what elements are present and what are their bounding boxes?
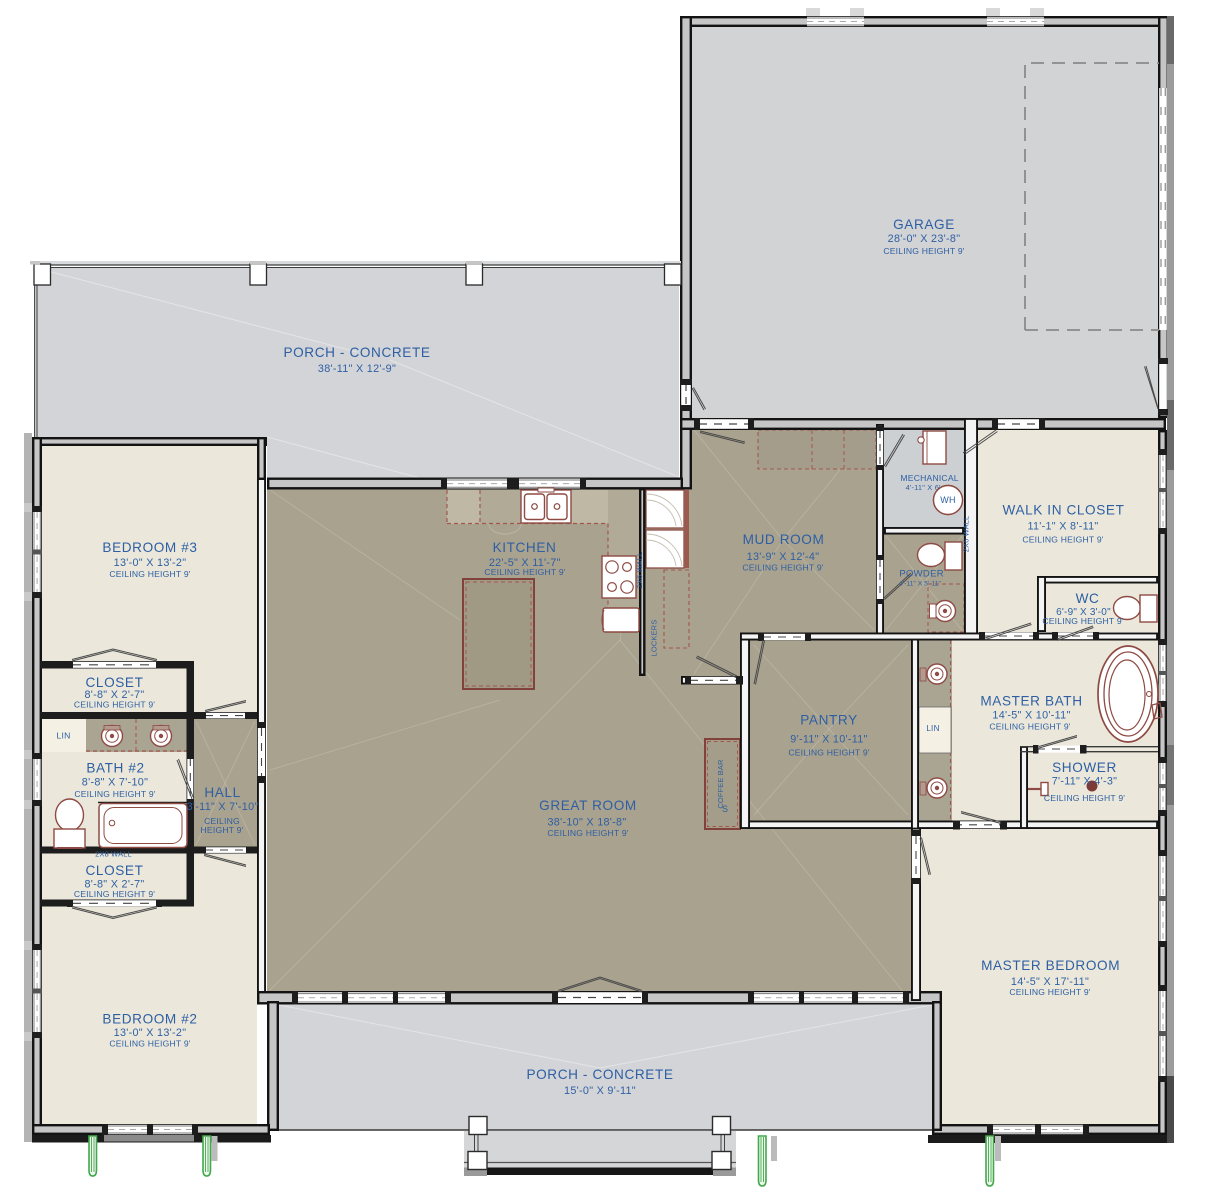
svg-text:S: S — [722, 804, 728, 814]
svg-text:CEILING HEIGHT 9': CEILING HEIGHT 9' — [484, 567, 565, 577]
svg-text:3'-11" X 7'-10": 3'-11" X 7'-10" — [187, 801, 259, 813]
svg-text:SHOWER: SHOWER — [1052, 760, 1117, 775]
svg-text:CEILING HEIGHT 9': CEILING HEIGHT 9' — [1042, 616, 1123, 626]
svg-text:2X6 WALL: 2X6 WALL — [962, 516, 971, 553]
svg-text:13'-9" X 12'-4": 13'-9" X 12'-4" — [747, 551, 820, 563]
svg-text:CEILING HEIGHT 9': CEILING HEIGHT 9' — [109, 1039, 190, 1049]
svg-text:9'-11" X 10'-11": 9'-11" X 10'-11" — [790, 734, 867, 746]
svg-text:HALL: HALL — [204, 785, 240, 800]
svg-text:PORCH - CONCRETE: PORCH - CONCRETE — [283, 345, 430, 360]
svg-text:MASTER BATH: MASTER BATH — [980, 694, 1082, 709]
svg-text:CEILING HEIGHT 9': CEILING HEIGHT 9' — [547, 828, 628, 838]
svg-text:4'-11" X 5'-11": 4'-11" X 5'-11" — [899, 581, 942, 588]
svg-text:CLOSET: CLOSET — [86, 675, 144, 690]
svg-text:7'-11" X 4'-3": 7'-11" X 4'-3" — [1052, 776, 1118, 788]
svg-text:LIN: LIN — [57, 731, 71, 741]
svg-text:MUD ROOM: MUD ROOM — [743, 532, 825, 547]
svg-text:LIN: LIN — [926, 724, 939, 733]
svg-text:WH: WH — [940, 495, 956, 505]
svg-text:BEDROOM #3: BEDROOM #3 — [102, 540, 197, 555]
svg-text:COFFEE BAR: COFFEE BAR — [716, 759, 725, 808]
svg-text:MASTER BEDROOM: MASTER BEDROOM — [981, 958, 1120, 973]
svg-text:38'-10" X 18'-8": 38'-10" X 18'-8" — [547, 817, 626, 829]
svg-text:BEDROOM #2: BEDROOM #2 — [102, 1012, 197, 1027]
svg-text:38'-11" X 12'-9": 38'-11" X 12'-9" — [318, 363, 396, 375]
svg-text:CEILING HEIGHT 9': CEILING HEIGHT 9' — [74, 889, 155, 899]
svg-text:14'-5" X 10'-11": 14'-5" X 10'-11" — [992, 710, 1070, 722]
svg-text:11'-1" X 8'-11": 11'-1" X 8'-11" — [1027, 521, 1098, 533]
svg-text:15'-0" X 9'-11": 15'-0" X 9'-11" — [564, 1085, 636, 1097]
svg-text:KITCHEN: KITCHEN — [493, 540, 557, 555]
svg-text:CEILING HEIGHT 9': CEILING HEIGHT 9' — [1022, 535, 1103, 545]
svg-text:13'-0" X 13'-2": 13'-0" X 13'-2" — [114, 1027, 187, 1039]
svg-text:HEIGHT 9': HEIGHT 9' — [201, 825, 244, 835]
svg-text:WC: WC — [1076, 591, 1100, 606]
svg-text:2X6 WALL: 2X6 WALL — [635, 552, 644, 589]
svg-text:28'-0" X 23'-8": 28'-0" X 23'-8" — [888, 233, 961, 245]
svg-text:2X8 WALL: 2X8 WALL — [95, 850, 132, 859]
svg-text:PANTRY: PANTRY — [800, 713, 857, 728]
svg-text:CEILING HEIGHT 9': CEILING HEIGHT 9' — [109, 569, 190, 579]
svg-text:CLOSET: CLOSET — [86, 863, 144, 878]
svg-text:GARAGE: GARAGE — [893, 217, 955, 232]
svg-text:CEILING HEIGHT 9': CEILING HEIGHT 9' — [1044, 793, 1125, 803]
svg-text:13'-0" X 13'-2": 13'-0" X 13'-2" — [114, 557, 187, 569]
svg-text:CEILING HEIGHT 9': CEILING HEIGHT 9' — [989, 722, 1070, 732]
svg-text:CEILING HEIGHT 9': CEILING HEIGHT 9' — [74, 789, 155, 799]
svg-text:PORCH - CONCRETE: PORCH - CONCRETE — [526, 1067, 673, 1082]
svg-text:CEILING HEIGHT 9': CEILING HEIGHT 9' — [883, 246, 964, 256]
svg-text:CEILING HEIGHT 9': CEILING HEIGHT 9' — [742, 563, 823, 573]
svg-text:CEILING HEIGHT 9': CEILING HEIGHT 9' — [1009, 987, 1090, 997]
svg-text:8'-8" X 7'-10": 8'-8" X 7'-10" — [82, 777, 148, 789]
svg-text:CEILING HEIGHT 9': CEILING HEIGHT 9' — [788, 748, 869, 758]
svg-text:BATH #2: BATH #2 — [86, 761, 144, 776]
svg-text:LOCKERS: LOCKERS — [650, 620, 659, 657]
svg-text:MECHANICAL: MECHANICAL — [900, 473, 958, 483]
svg-text:POWDER: POWDER — [899, 569, 944, 580]
svg-text:GREAT ROOM: GREAT ROOM — [539, 798, 637, 813]
svg-text:CEILING HEIGHT 9': CEILING HEIGHT 9' — [74, 700, 155, 710]
svg-text:WALK IN CLOSET: WALK IN CLOSET — [1003, 503, 1125, 518]
